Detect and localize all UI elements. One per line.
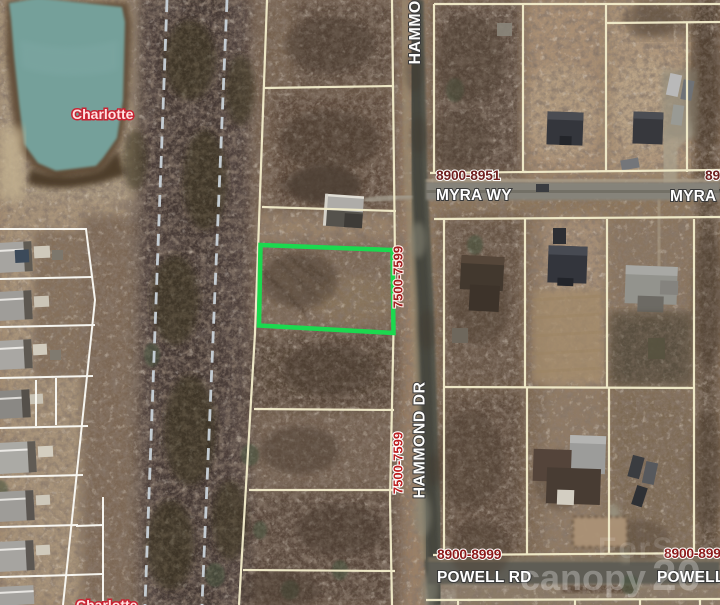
svg-text:HAMMOND DR: HAMMOND DR: [407, 0, 424, 64]
svg-text:Charlotte: Charlotte: [76, 597, 138, 605]
svg-text:Charlotte: Charlotte: [72, 106, 134, 122]
svg-text:8900-8999: 8900-8999: [437, 547, 502, 562]
svg-text:canopy20: canopy20: [520, 551, 701, 600]
svg-text:POWELL RD: POWELL RD: [437, 569, 532, 586]
svg-text:MYRA WY: MYRA WY: [436, 187, 512, 204]
svg-text:8900-8951: 8900-8951: [705, 168, 720, 183]
svg-text:MYRA WY: MYRA WY: [670, 188, 720, 205]
svg-text:7500-7599: 7500-7599: [390, 246, 405, 308]
svg-text:8900-8951: 8900-8951: [436, 168, 501, 183]
svg-text:7500-7599: 7500-7599: [390, 432, 405, 494]
svg-text:HAMMOND DR: HAMMOND DR: [412, 382, 429, 499]
